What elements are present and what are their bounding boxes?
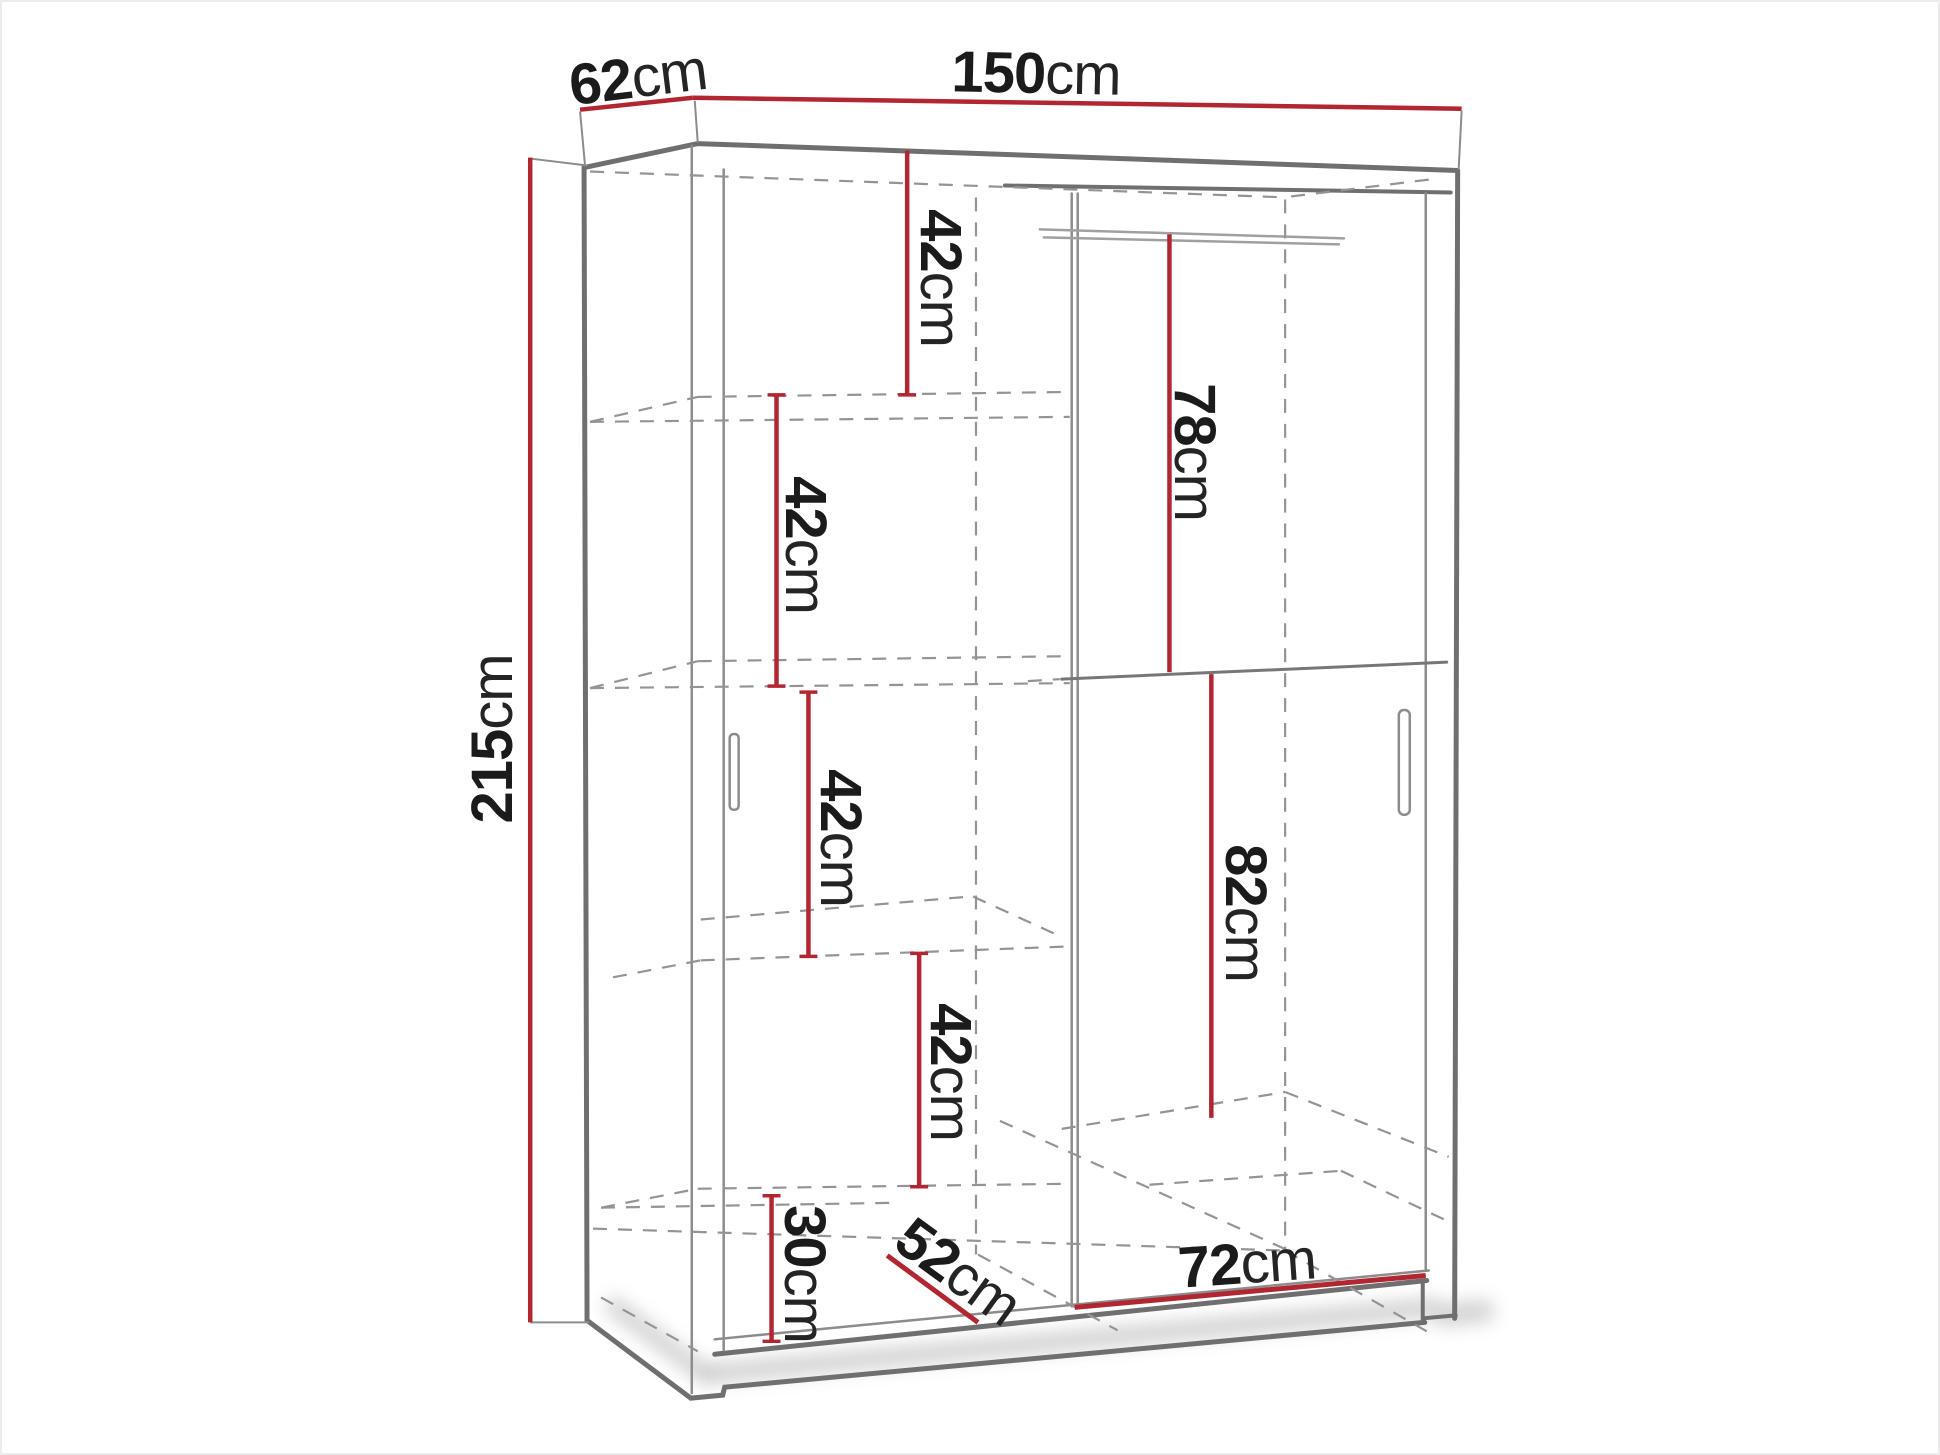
wardrobe-outline <box>584 144 1458 1399</box>
dim-label-42-3: 42cm <box>811 769 869 907</box>
dim-label-30: 30cm <box>775 1205 833 1343</box>
dim-label-42-2: 42cm <box>776 476 834 614</box>
dim-label-78: 78cm <box>1165 383 1223 521</box>
dim-label-width-150: 150cm <box>951 43 1121 105</box>
wardrobe-dimension-diagram: 150cm 62cm 215cm 42cm 42cm 42cm 42cm 78c… <box>0 0 1940 1455</box>
dim-label-height-215: 215cm <box>464 654 522 823</box>
dimension-lines <box>530 98 1461 1342</box>
dim-label-42-4: 42cm <box>921 1003 979 1141</box>
dim-label-72: 72cm <box>1176 1230 1318 1297</box>
dim-label-depth-62: 62cm <box>566 41 710 115</box>
left-door-handle-icon <box>730 734 739 810</box>
dim-label-82: 82cm <box>1216 844 1274 982</box>
dim-label-42-1: 42cm <box>911 209 969 347</box>
hidden-shelf-lines <box>590 172 1449 1352</box>
right-door-handle-icon <box>1399 710 1410 815</box>
dimension-extension-lines <box>530 101 1461 1323</box>
